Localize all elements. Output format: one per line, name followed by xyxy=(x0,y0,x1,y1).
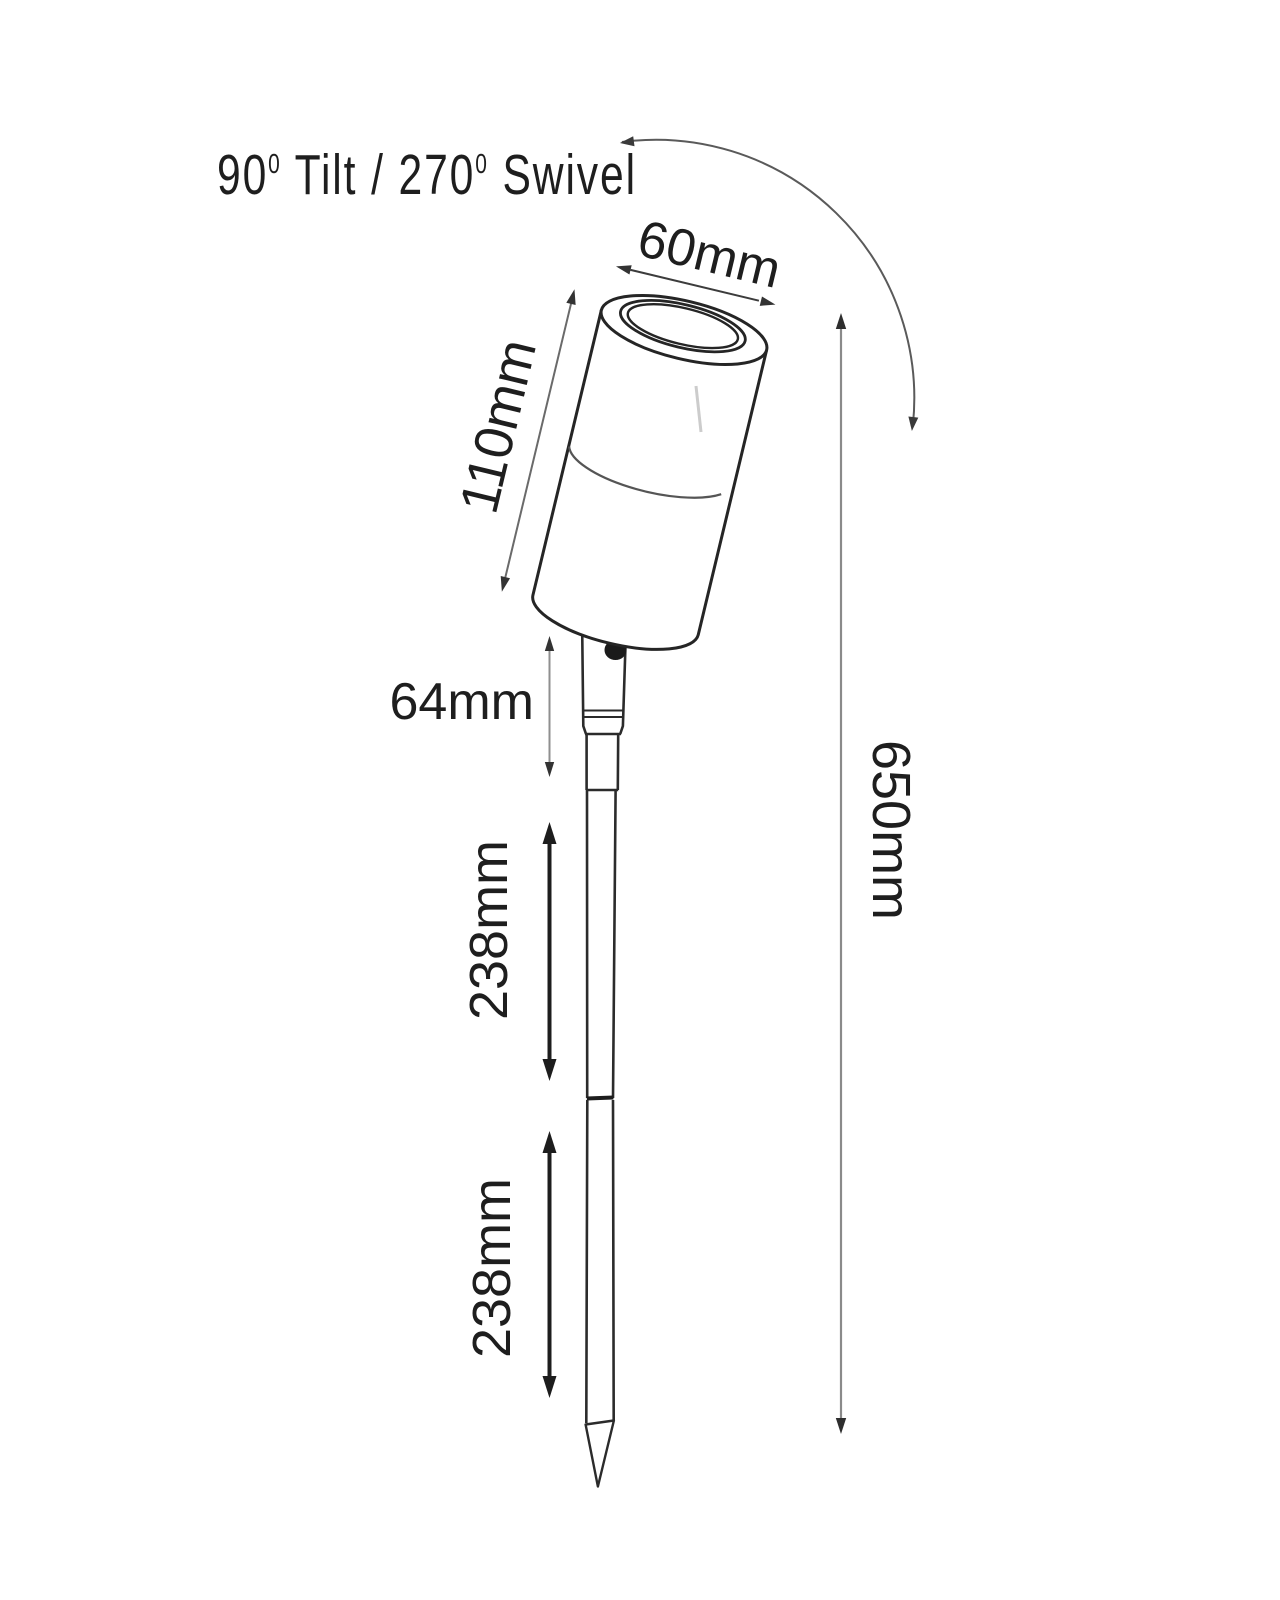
svg-text:650mm: 650mm xyxy=(861,740,921,920)
svg-text:238mm: 238mm xyxy=(462,1178,522,1358)
svg-text:64mm: 64mm xyxy=(390,673,534,731)
svg-text:238mm: 238mm xyxy=(459,840,519,1020)
